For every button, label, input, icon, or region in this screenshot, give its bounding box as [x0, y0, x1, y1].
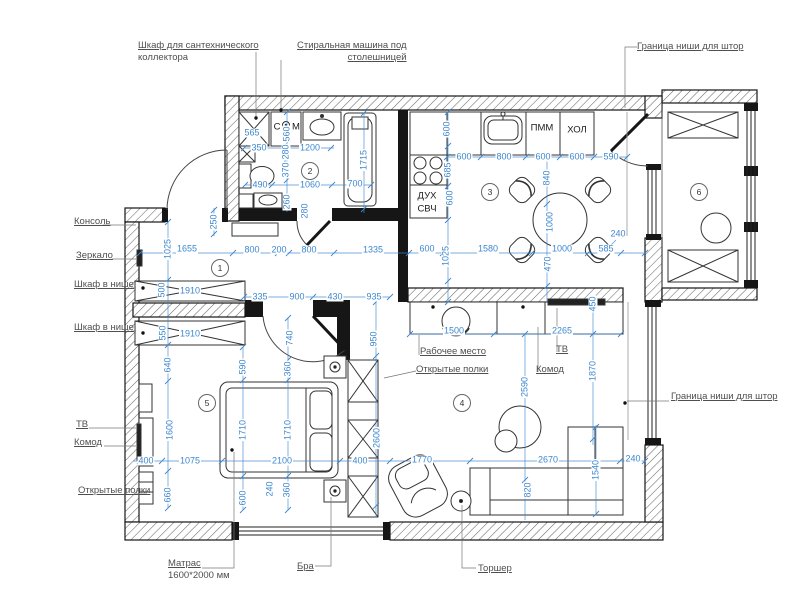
dimension-label: 1910	[179, 330, 201, 339]
dimension-label: 400	[351, 457, 368, 466]
dimension-label: 1600	[166, 419, 175, 441]
balcony-cabinet-top	[668, 112, 738, 138]
dimension-label: 1710	[284, 419, 293, 441]
dimension-label: 600	[239, 489, 248, 506]
bedroom-door	[263, 316, 345, 362]
tv-left-label: ТВ	[76, 419, 88, 431]
dimension-label: 600	[443, 120, 452, 137]
dresser-living-label-text: Комод	[536, 364, 564, 376]
mirror-label: Зеркало	[76, 250, 113, 262]
niche-wardrobe-label-2: Шкаф в нише	[74, 322, 134, 334]
dimension-label: 1025	[442, 245, 451, 267]
dimension-label: 280	[282, 143, 291, 160]
curtain-niche-lines	[627, 112, 628, 440]
dimension-label: 1335	[362, 246, 384, 255]
leader-dot	[230, 448, 233, 451]
dimension-label: 400	[137, 457, 154, 466]
dimension-label: 335	[251, 293, 268, 302]
tv-living-label-text: ТВ	[556, 344, 568, 356]
sconce-label: Бра	[297, 561, 314, 573]
mattress-label-text: 1600*2000 мм	[168, 570, 230, 582]
dimension-label: 2265	[551, 327, 573, 336]
dimension-label: 250	[210, 213, 219, 230]
dimension-label: 1075	[179, 457, 201, 466]
coffee-table-pouf	[495, 406, 541, 452]
floorplan-drawing	[0, 0, 800, 616]
dimension-label: 600	[455, 153, 472, 162]
mattress-label-text: Матрас	[168, 558, 230, 570]
dresser-left-label: Комод	[74, 437, 102, 449]
dresser-left-label-text: Комод	[74, 437, 102, 449]
plumbing-cabinet-label: Шкаф для сантехническогоколлектора	[138, 40, 259, 64]
floorlamp-label: Торшер	[478, 563, 512, 575]
shelves-living-label: Открытые полки	[416, 364, 488, 376]
room-number-2: 2	[301, 162, 319, 180]
workplace-label-text: Рабочее место	[420, 346, 486, 358]
plumbing-cabinet-label-text: коллектора	[138, 52, 259, 64]
washer-label-text: столешницей	[297, 52, 407, 64]
room-number-3: 3	[481, 183, 499, 201]
dimension-label: 700	[346, 180, 363, 189]
washer-label-text: Стиральная машина под	[297, 40, 407, 52]
dimension-label: 370	[282, 161, 291, 178]
leader-dot	[254, 116, 257, 119]
dresser-living-label: Комод	[536, 364, 564, 376]
dimension-label: 550	[159, 324, 168, 341]
leader-dot	[141, 286, 144, 289]
dimension-label: 1060	[299, 181, 321, 190]
dimension-label: 450	[589, 295, 598, 312]
floorplan-page: 5653505602801200370490106070017152602802…	[0, 0, 800, 616]
cooktop	[410, 155, 447, 185]
balcony-table	[701, 213, 731, 243]
room-number-6: 6	[690, 183, 708, 201]
dimension-label: 430	[326, 293, 343, 302]
dimension-label: 800	[243, 246, 260, 255]
dimension-label: 360	[283, 481, 292, 498]
dimension-label: 600	[418, 245, 435, 254]
dimension-label: 1580	[477, 245, 499, 254]
appliance-label: СВЧ	[417, 204, 436, 215]
nightstand-top	[324, 356, 346, 378]
dimension-label: 900	[288, 293, 305, 302]
dimension-label: 840	[543, 169, 552, 186]
living-east-window	[648, 307, 656, 438]
kitchen-sink	[484, 112, 522, 144]
mirror-label-text: Зеркало	[76, 250, 113, 262]
niche-wardrobe-label-2-text: Шкаф в нише	[74, 322, 134, 334]
dimension-label: 950	[370, 330, 379, 347]
dining-table	[533, 193, 587, 247]
dimension-label: 260	[283, 193, 292, 210]
mattress-label: Матрас1600*2000 мм	[168, 558, 230, 582]
dimension-label: 1710	[239, 419, 248, 441]
appliance-label: С	[274, 122, 281, 133]
washer-label: Стиральная машина подстолешницей	[297, 40, 407, 64]
dimension-label: 660	[164, 486, 173, 503]
console-label-text: Консоль	[74, 216, 111, 228]
bathroom-cabinet	[239, 193, 282, 208]
dimension-label: 685	[444, 161, 453, 178]
floor-lamp	[451, 491, 471, 511]
room-number-5: 5	[198, 394, 216, 412]
dimension-label: 1870	[589, 360, 598, 382]
shelves-living-label-text: Открытые полки	[416, 364, 488, 376]
dimension-label: 560	[283, 125, 292, 142]
dimension-label: 590	[239, 358, 248, 375]
floorlamp-label-text: Торшер	[478, 563, 512, 575]
room-number-4: 4	[453, 394, 471, 412]
dimension-label: 2600	[373, 427, 382, 449]
dimension-label: 565	[243, 129, 260, 138]
dimension-label: 490	[251, 181, 268, 190]
dimension-label: 360	[284, 360, 293, 377]
dimension-label: 600	[446, 189, 455, 206]
mirror	[137, 250, 142, 266]
dimension-label: 935	[365, 293, 382, 302]
nightstand-bottom	[324, 480, 346, 502]
dimension-label: 585	[597, 245, 614, 254]
console-table	[232, 223, 278, 236]
appliance-label: ПММ	[531, 123, 554, 134]
dimension-label: 820	[524, 481, 533, 498]
dimension-label: 1910	[179, 287, 201, 296]
dimension-label: 1000	[551, 245, 573, 254]
entrance-door	[167, 150, 227, 210]
dimension-label: 1655	[176, 245, 198, 254]
dimension-label: 2670	[537, 456, 559, 465]
plumbing-cabinet-label-text: Шкаф для сантехнического	[138, 40, 259, 52]
appliance-label: М	[292, 122, 300, 133]
leader-dot	[521, 305, 524, 308]
dimension-label: 640	[164, 356, 173, 373]
tv-left-label-text: ТВ	[76, 419, 88, 431]
workplace-label: Рабочее место	[420, 346, 486, 358]
dimension-label: 800	[300, 246, 317, 255]
leader-dot	[623, 401, 626, 404]
console-label: Консоль	[74, 216, 111, 228]
appliance-label: ХОЛ	[567, 125, 587, 136]
dimension-label: 240	[624, 455, 641, 464]
dimension-label: 200	[270, 246, 287, 255]
dimension-label: 590	[602, 153, 619, 162]
niche-wardrobe-label-1-text: Шкаф в нише	[74, 279, 134, 291]
dimension-label: 600	[568, 153, 585, 162]
shelves-left-label-text: Открытые полки	[78, 485, 150, 497]
dimension-label: 1500	[443, 327, 465, 336]
room-number-1: 1	[211, 259, 229, 277]
dimension-label: 1715	[360, 149, 369, 171]
tv-living-label: ТВ	[556, 344, 568, 356]
shelves-left-label: Открытые полки	[78, 485, 150, 497]
sconce-label-text: Бра	[297, 561, 314, 573]
curtain-niche-top-label-text: Граница ниши для штор	[637, 41, 744, 53]
dimension-label: 800	[495, 153, 512, 162]
dimension-label: 740	[286, 329, 295, 346]
dimension-label: 500	[158, 281, 167, 298]
dimension-label: 470	[544, 255, 553, 272]
dimension-label: 2590	[521, 376, 530, 398]
dimension-label: 1025	[164, 238, 173, 260]
niche-wardrobe-label-1: Шкаф в нише	[74, 279, 134, 291]
leader-dot	[431, 305, 434, 308]
dimension-label: 1540	[592, 459, 601, 481]
dimension-label: 240	[609, 230, 626, 239]
leader-dot	[279, 108, 282, 111]
dimension-label: 1200	[299, 144, 321, 153]
balcony-partition-window	[648, 170, 656, 234]
dimension-label: 1000	[546, 211, 555, 233]
bathroom-door	[297, 221, 330, 245]
dimension-label: 350	[250, 144, 267, 153]
dimension-label: 280	[301, 202, 310, 219]
dimension-label: 1770	[411, 456, 433, 465]
leader-dot	[141, 331, 144, 334]
bathroom-sink	[303, 112, 341, 140]
curtain-niche-right-label: Граница ниши для штор	[671, 391, 778, 403]
bedroom-window	[239, 527, 383, 535]
dimension-label: 2100	[271, 457, 293, 466]
balcony-cabinet-bottom	[668, 250, 738, 282]
curtain-niche-top-label: Граница ниши для штор	[637, 41, 744, 53]
curtain-niche-right-label-text: Граница ниши для штор	[671, 391, 778, 403]
dimension-label: 600	[534, 153, 551, 162]
dimension-label: 240	[266, 480, 275, 497]
appliance-label: ДУХ	[418, 191, 437, 202]
